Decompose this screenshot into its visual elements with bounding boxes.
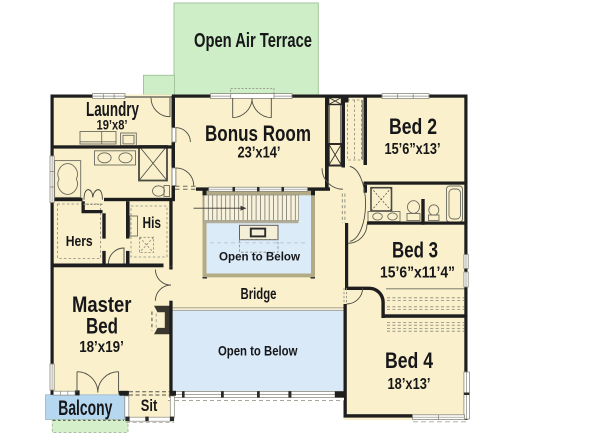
- svg-text:Bed 4: Bed 4: [385, 348, 434, 373]
- svg-text:18’x13’: 18’x13’: [388, 376, 431, 393]
- svg-text:Bed 3: Bed 3: [392, 238, 438, 263]
- svg-text:Bed: Bed: [86, 314, 118, 339]
- svg-text:Open Air Terrace: Open Air Terrace: [194, 30, 312, 52]
- svg-text:His: His: [143, 215, 162, 232]
- svg-text:Balcony: Balcony: [58, 397, 112, 420]
- svg-text:23’x14’: 23’x14’: [238, 145, 281, 162]
- svg-text:15’6”x13’: 15’6”x13’: [385, 141, 441, 158]
- svg-text:Bed 2: Bed 2: [389, 114, 437, 139]
- svg-text:Open to Below: Open to Below: [218, 343, 298, 359]
- svg-text:Bridge: Bridge: [241, 286, 277, 303]
- svg-text:18’x19’: 18’x19’: [79, 339, 124, 356]
- svg-text:Hers: Hers: [66, 233, 93, 250]
- svg-text:Bonus Room: Bonus Room: [205, 121, 311, 146]
- svg-text:Open to Below: Open to Below: [219, 250, 301, 264]
- svg-text:15’6”x11’4”: 15’6”x11’4”: [380, 265, 455, 282]
- svg-text:19’x8’: 19’x8’: [97, 118, 128, 133]
- svg-text:Sit: Sit: [141, 396, 158, 415]
